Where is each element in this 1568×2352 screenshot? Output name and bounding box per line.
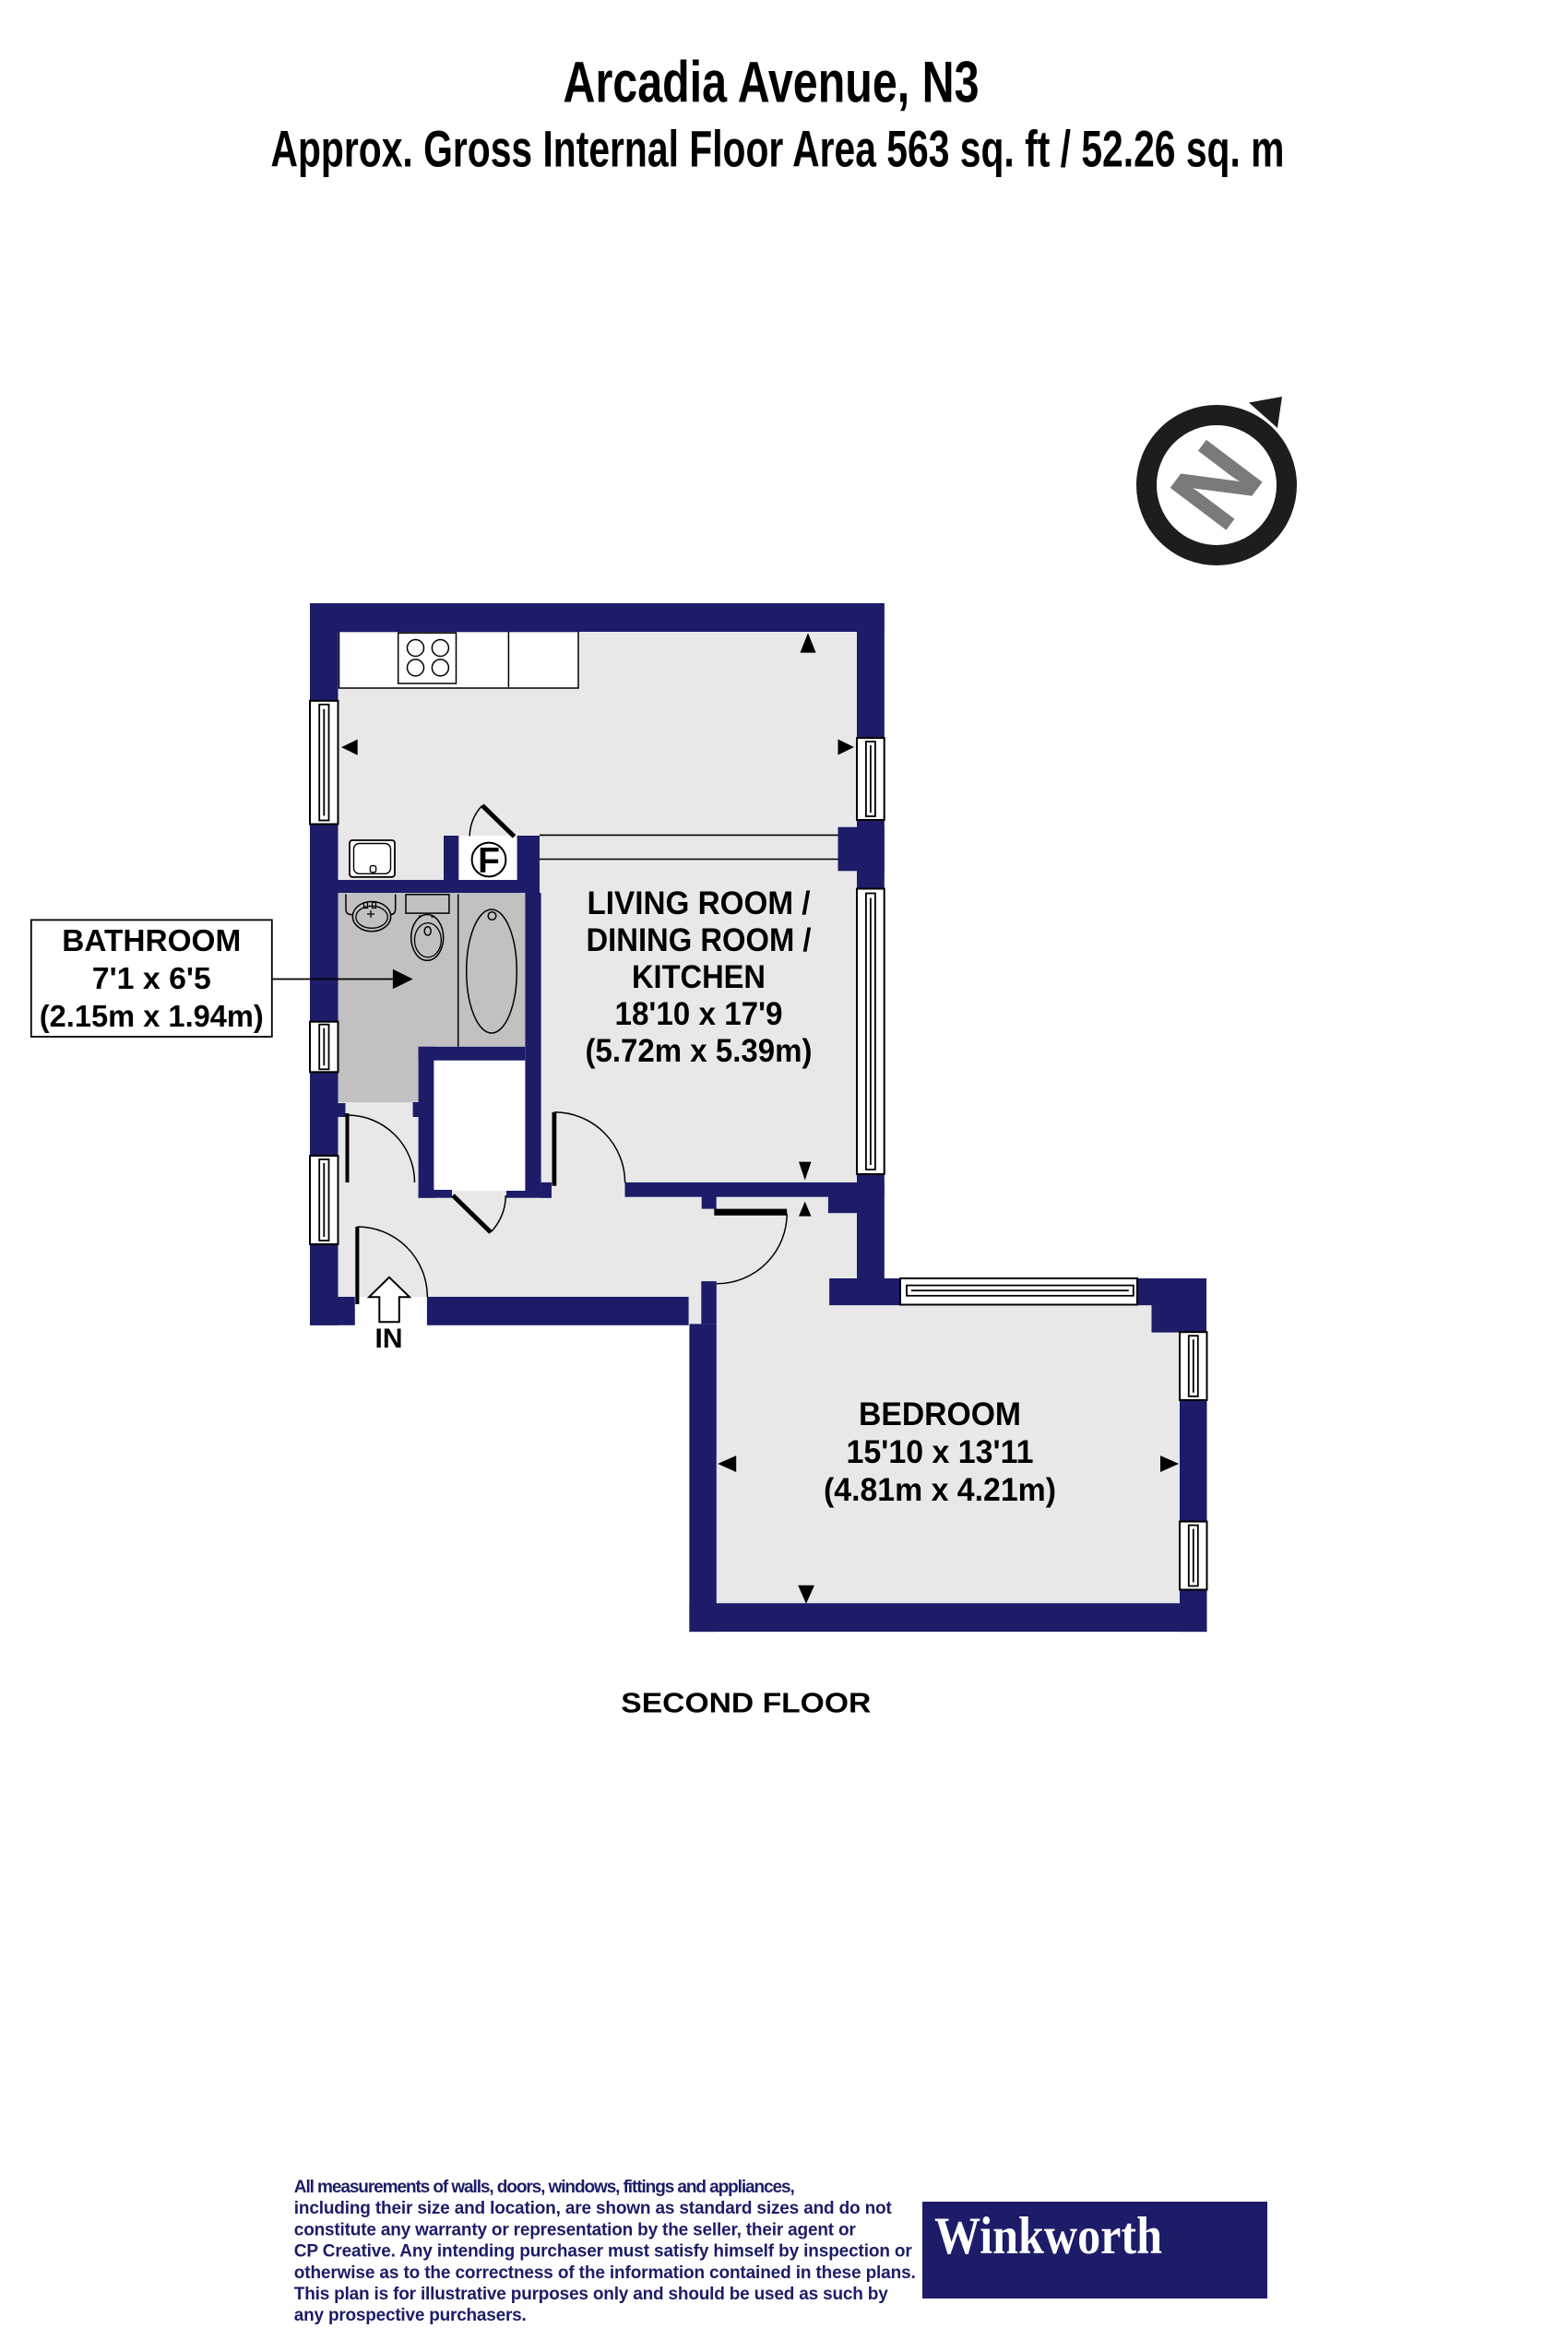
svg-text:Approx. Gross Internal Floor A: Approx. Gross Internal Floor Area 563 sq… [271,119,1285,177]
svg-text:This plan is for illustrative: This plan is for illustrative purposes o… [294,2285,888,2304]
svg-text:DINING ROOM /: DINING ROOM / [587,922,812,958]
svg-text:15'10 x 13'11: 15'10 x 13'11 [847,1434,1034,1470]
svg-text:CP Creative. Any intending pur: CP Creative. Any intending purchaser mus… [294,2242,913,2262]
svg-text:BEDROOM: BEDROOM [859,1396,1021,1432]
svg-text:otherwise as to the correctnes: otherwise as to the correctness of the i… [294,2263,916,2283]
svg-text:(2.15m x 1.94m): (2.15m x 1.94m) [40,999,264,1033]
svg-text:IN: IN [375,1324,403,1354]
svg-text:All measurements of walls, doo: All measurements of walls, doors, window… [294,2178,795,2197]
svg-text:18'10 x 17'9: 18'10 x 17'9 [615,996,783,1032]
svg-text:Arcadia Avenue, N3: Arcadia Avenue, N3 [564,51,980,115]
svg-text:constitute any warranty or rep: constitute any warranty or representatio… [294,2220,857,2239]
svg-text:including their size and locat: including their size and location, are s… [294,2199,893,2218]
svg-text:7'1 x 6'5: 7'1 x 6'5 [92,961,211,995]
svg-text:SECOND FLOOR: SECOND FLOOR [621,1687,871,1719]
svg-text:(5.72m x 5.39m): (5.72m x 5.39m) [586,1033,813,1069]
svg-text:F: F [478,841,500,881]
svg-text:LIVING ROOM /: LIVING ROOM / [588,885,811,921]
svg-text:any prospective purchasers.: any prospective purchasers. [294,2306,527,2325]
svg-text:(4.81m x 4.21m): (4.81m x 4.21m) [824,1472,1056,1508]
svg-text:KITCHEN: KITCHEN [632,959,766,995]
svg-text:Winkworth: Winkworth [934,2207,1162,2265]
svg-text:BATHROOM: BATHROOM [62,923,241,957]
